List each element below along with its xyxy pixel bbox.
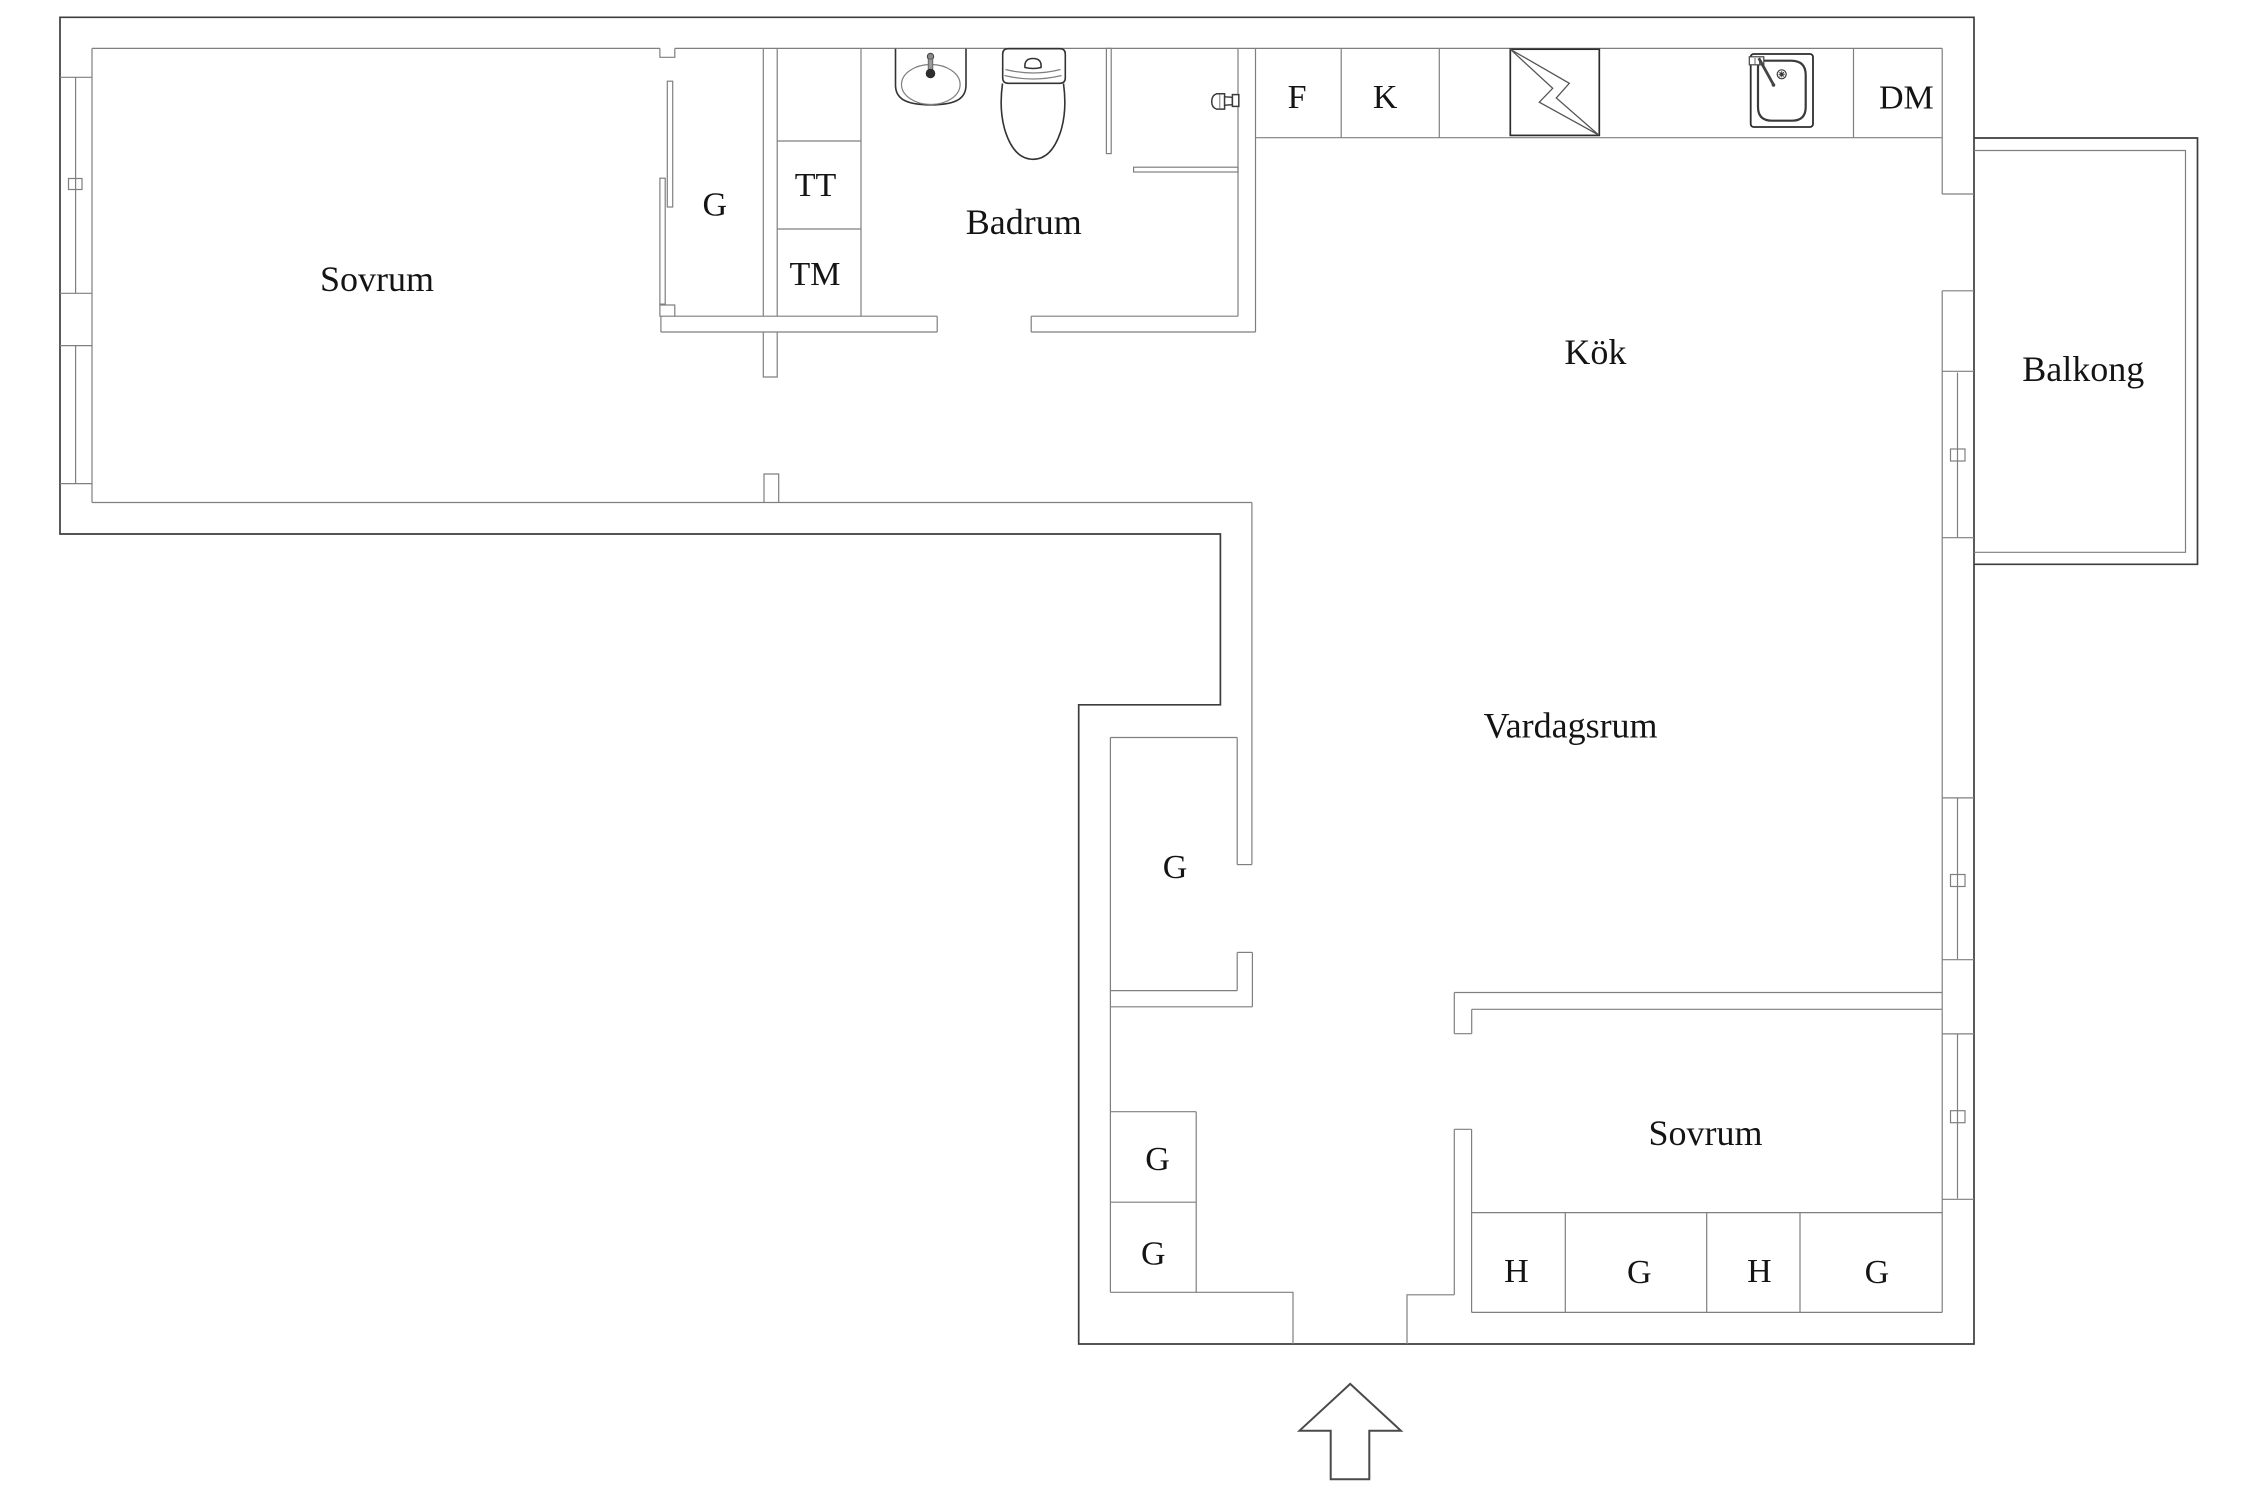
svg-text:G: G	[1163, 849, 1188, 886]
svg-text:Sovrum: Sovrum	[320, 259, 434, 299]
svg-text:DM: DM	[1879, 80, 1934, 117]
svg-text:G: G	[1627, 1254, 1652, 1291]
svg-text:H: H	[1504, 1253, 1529, 1290]
svg-text:F: F	[1288, 79, 1307, 116]
svg-text:Sovrum: Sovrum	[1648, 1113, 1762, 1153]
svg-text:G: G	[1141, 1236, 1166, 1273]
svg-text:Badrum: Badrum	[966, 202, 1082, 242]
svg-text:Balkong: Balkong	[2022, 349, 2144, 389]
svg-text:G: G	[1865, 1254, 1890, 1291]
svg-text:Vardagsrum: Vardagsrum	[1484, 706, 1658, 746]
svg-text:TT: TT	[795, 167, 837, 204]
svg-text:G: G	[1145, 1141, 1170, 1178]
svg-text:K: K	[1373, 79, 1398, 116]
svg-text:Kök: Kök	[1564, 332, 1626, 372]
svg-text:G: G	[703, 187, 728, 224]
svg-text:H: H	[1747, 1253, 1772, 1290]
svg-text:TM: TM	[790, 256, 841, 293]
